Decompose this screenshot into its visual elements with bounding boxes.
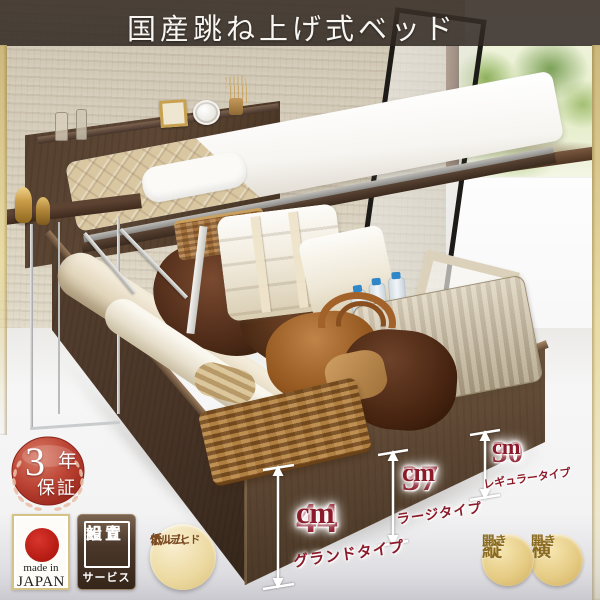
gold-edge-right xyxy=(592,45,600,600)
shelf-photo-frame xyxy=(159,99,188,128)
side-table-leg xyxy=(30,224,33,429)
gold-candlestick xyxy=(15,187,32,223)
vertical-opening-sub: 開き xyxy=(482,534,507,548)
made-in-text: made in xyxy=(14,562,68,574)
warranty-badge-medal xyxy=(3,430,95,516)
gold-candlestick xyxy=(36,197,50,225)
warranty-label: 保証 xyxy=(37,479,77,497)
shelf-bottle xyxy=(76,109,87,140)
low-formaldehyde-badge: 低 ホルム アルデヒド xyxy=(150,524,216,590)
made-in-japan-badge: made in JAPAN xyxy=(12,514,70,590)
storage-box-corner-edge xyxy=(244,462,247,585)
assembly-badge-inner-box: 組立 設置 xyxy=(84,521,130,568)
assembly-service-badge: 組立 設置 サービス xyxy=(77,514,136,590)
page-title: 国産跳ね上げ式ベッド xyxy=(0,6,592,48)
shelf-alarm-clock xyxy=(193,100,220,125)
japan-text: JAPAN xyxy=(14,574,68,591)
horizontal-opening-badge: 横 開き xyxy=(531,534,583,586)
vertical-opening-badge: 縦 開き xyxy=(482,534,534,586)
shelf-reed-diffuser-vase xyxy=(229,98,243,115)
shelf-bottle xyxy=(55,112,68,141)
futon-strap xyxy=(250,216,271,312)
side-table-leg xyxy=(58,222,60,414)
horizontal-opening-sub: 開き xyxy=(531,534,556,548)
warranty-years-number: 3 xyxy=(25,442,45,482)
height-arrow-44cm xyxy=(260,462,300,592)
assembly-service-text: サービス xyxy=(78,569,135,585)
warranty-years-unit: 年 xyxy=(58,452,77,471)
product-hero-image: 国産跳ね上げ式ベッド 3 xyxy=(0,0,600,600)
formaldehyde-line3: アルデヒド xyxy=(150,533,200,548)
assembly-text-line2: 設置 xyxy=(86,523,124,545)
japan-flag-icon xyxy=(25,528,59,562)
gold-edge-left xyxy=(0,45,7,435)
